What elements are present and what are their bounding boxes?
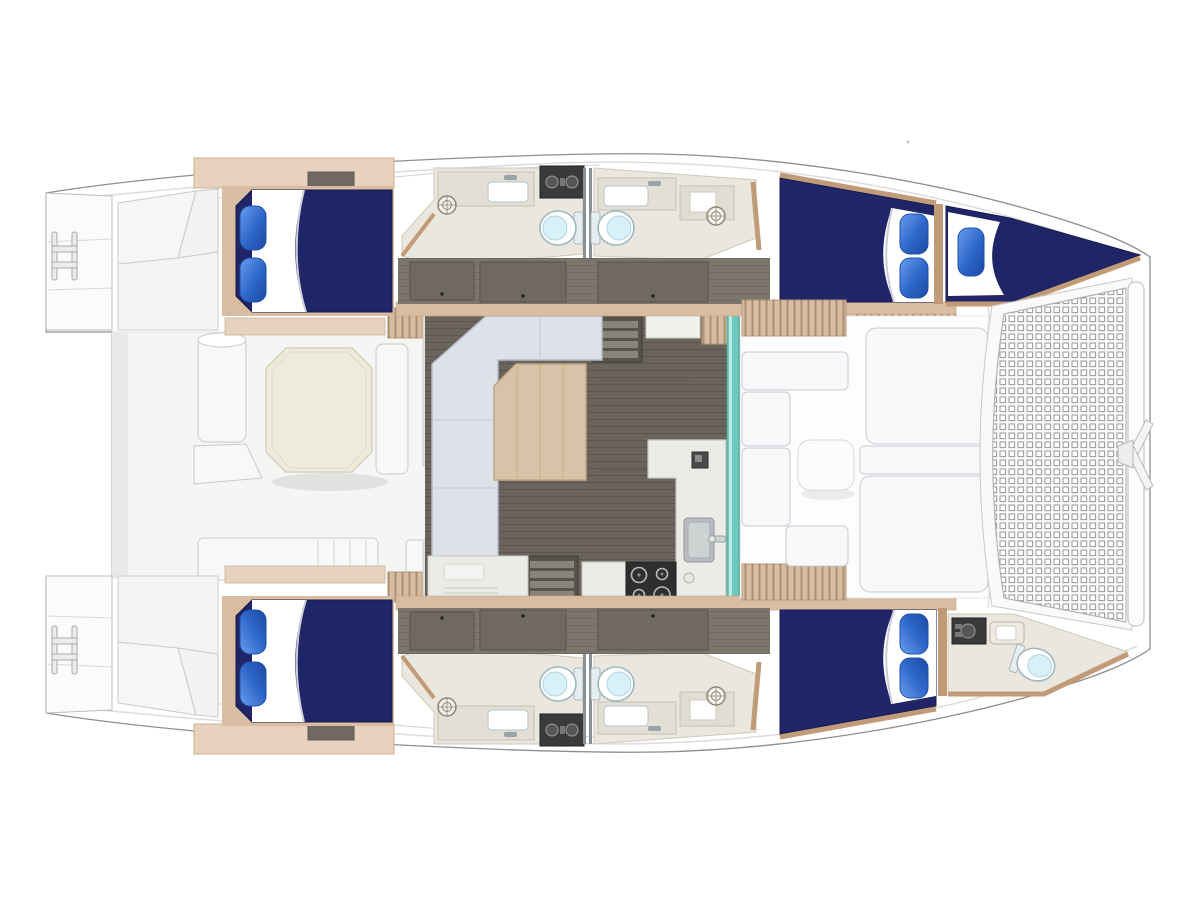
trampoline-mesh-icon [993,288,1126,622]
knob [651,294,654,297]
forward-cockpit [740,300,997,608]
toilet-icon [591,211,634,245]
knob [440,292,443,295]
sink-icon [604,186,648,206]
shower-drain-icon [438,196,456,214]
aft-walkway-bottom [225,566,385,583]
foredeck-hatch-bottom [742,564,846,600]
systems-panel-icon [952,618,986,644]
salon [425,302,740,612]
sunpad-divider [860,446,988,474]
transom-step-3 [118,252,218,330]
catamaran-floorplan [0,0,1200,900]
galley-knob [684,573,694,583]
bow-divider [934,204,943,304]
transom-steps-mirrored [46,576,218,717]
cabin-shelf [194,158,394,188]
sunpad [860,476,988,592]
aft-cockpit [112,306,434,612]
rigging-mark [906,140,909,143]
cockpit-lounge-seat [198,338,246,442]
foredeck-trampoline [980,278,1153,630]
cockpit-side-bench [376,344,408,474]
transom-steps [46,189,218,330]
floorplan-canvas [0,0,1200,900]
sink-basin [996,626,1016,640]
pillow [900,258,928,298]
starboard-hull-mirrored [194,576,956,754]
aft-platform-shadow [112,332,128,578]
faucet-icon [648,181,661,186]
shower-drain-icon [707,207,725,225]
counter-basin [444,564,484,580]
pillow [900,214,928,254]
fwd-seat [742,392,790,446]
aft-cockpit-table [266,348,372,472]
bow-divider [938,608,947,696]
aft-walkway-top [225,318,385,335]
hull-corridor [398,258,770,304]
foredeck-table [798,440,854,490]
salon-forward-door [727,304,739,612]
table-shadow [272,473,388,491]
sink-icon [488,182,528,202]
fwd-seat [742,352,848,390]
toilet-icon [540,211,583,245]
foredeck-hatch-top [742,300,846,336]
pillow [240,258,266,302]
pillow [240,206,266,250]
aft-cabin [194,158,394,316]
fwd-seat [742,448,790,526]
sunpad [866,328,988,444]
faucet-icon [504,175,517,180]
pillow [958,228,984,276]
fwd-bench [786,526,848,566]
shower-divider [583,168,586,260]
systems-panel-icon [540,166,584,198]
knob [521,294,524,297]
galley-hatch-inner [695,455,702,462]
